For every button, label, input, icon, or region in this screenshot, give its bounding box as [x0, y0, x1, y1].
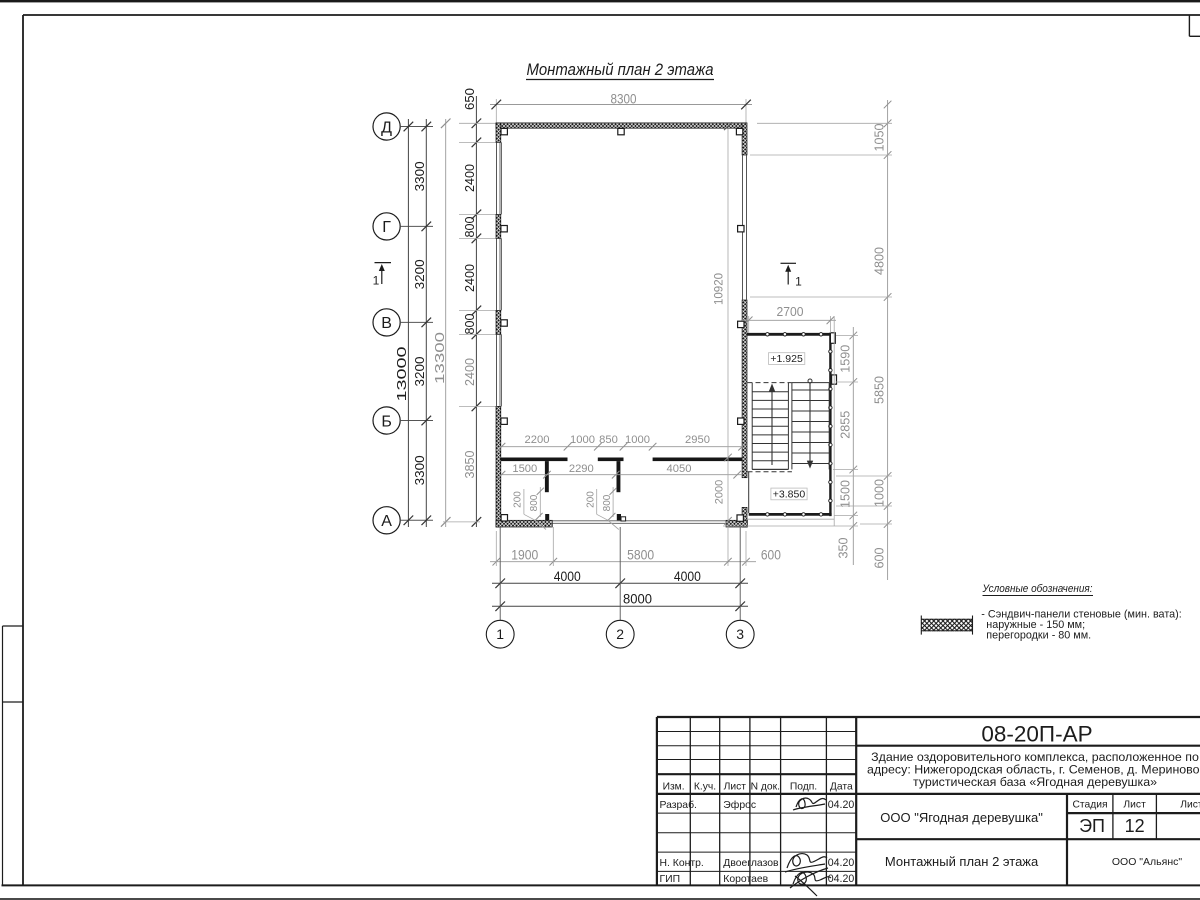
- svg-text:К.уч.: К.уч.: [694, 782, 716, 793]
- svg-text:12: 12: [1125, 816, 1145, 836]
- svg-text:1500: 1500: [512, 463, 537, 475]
- svg-text:2855: 2855: [839, 411, 853, 439]
- svg-text:Изм.: Изм.: [663, 782, 685, 793]
- svg-text:800: 800: [463, 216, 477, 237]
- svg-text:Коротаев: Коротаев: [723, 874, 768, 885]
- svg-text:650: 650: [463, 88, 477, 110]
- svg-text:08-20П-АР: 08-20П-АР: [981, 722, 1092, 747]
- svg-text:800: 800: [463, 313, 477, 334]
- svg-text:Стадия: Стадия: [1072, 800, 1107, 811]
- svg-text:4000: 4000: [674, 569, 701, 584]
- svg-text:Г: Г: [382, 219, 391, 236]
- svg-text:1590: 1590: [839, 345, 853, 373]
- svg-text:ГИП: ГИП: [660, 874, 681, 885]
- svg-text:4050: 4050: [667, 463, 692, 475]
- svg-text:1900: 1900: [511, 548, 538, 563]
- svg-text:3200: 3200: [412, 259, 427, 289]
- svg-text:2290: 2290: [569, 463, 594, 475]
- svg-text:4000: 4000: [554, 569, 581, 584]
- svg-text:2200: 2200: [525, 434, 550, 446]
- svg-text:10920: 10920: [714, 273, 726, 305]
- svg-text:Дата: Дата: [830, 782, 853, 793]
- svg-text:А: А: [381, 513, 392, 530]
- svg-text:ООО "Альянс": ООО "Альянс": [1112, 856, 1182, 868]
- svg-text:ЭП: ЭП: [1079, 816, 1105, 836]
- svg-text:600: 600: [873, 547, 887, 568]
- svg-text:3200: 3200: [412, 357, 427, 387]
- svg-text:800: 800: [602, 494, 613, 511]
- svg-text:В: В: [381, 315, 392, 332]
- svg-text:04.20: 04.20: [828, 799, 855, 811]
- svg-text:1050: 1050: [873, 123, 887, 151]
- svg-text:3850: 3850: [463, 450, 477, 478]
- svg-text:850: 850: [599, 434, 618, 446]
- svg-text:туристическая база «Ягодная де: туристическая база «Ягодная деревушка»: [913, 775, 1157, 789]
- svg-text:3300: 3300: [412, 455, 427, 485]
- svg-text:1: 1: [795, 275, 802, 289]
- svg-text:1000: 1000: [873, 479, 887, 507]
- svg-text:3300: 3300: [412, 161, 427, 191]
- svg-text:2: 2: [616, 626, 624, 642]
- svg-text:2000: 2000: [714, 480, 726, 504]
- svg-text:1000: 1000: [625, 434, 650, 446]
- svg-text:350: 350: [837, 537, 851, 558]
- svg-text:5850: 5850: [873, 376, 887, 404]
- svg-text:2400: 2400: [463, 164, 477, 192]
- svg-text:200: 200: [513, 491, 524, 508]
- svg-text:8000: 8000: [623, 592, 652, 607]
- svg-text:1: 1: [373, 274, 380, 288]
- svg-text:Монтажный план 2 этажа: Монтажный план 2 этажа: [885, 854, 1039, 869]
- svg-text:Подп.: Подп.: [790, 782, 817, 793]
- svg-text:Лист: Лист: [724, 782, 747, 793]
- svg-text:Условные обозначения:: Условные обозначения:: [982, 583, 1093, 595]
- svg-text:+1.925: +1.925: [770, 353, 803, 365]
- svg-text:200: 200: [585, 491, 596, 508]
- svg-text:2700: 2700: [777, 305, 804, 319]
- svg-text:перегородки - 80 мм.: перегородки - 80 мм.: [986, 630, 1091, 642]
- svg-text:4800: 4800: [873, 247, 887, 275]
- svg-text:1000: 1000: [570, 434, 595, 446]
- svg-text:N док.: N док.: [751, 782, 780, 793]
- svg-text:Д: Д: [381, 119, 392, 136]
- svg-text:13300: 13300: [433, 332, 447, 384]
- svg-text:5800: 5800: [627, 548, 654, 563]
- svg-text:Эфрос: Эфрос: [723, 799, 756, 811]
- svg-text:3: 3: [736, 626, 744, 642]
- svg-text:04.20: 04.20: [828, 857, 855, 869]
- svg-text:2400: 2400: [463, 358, 477, 386]
- svg-text:600: 600: [761, 548, 781, 563]
- svg-text:800: 800: [529, 494, 540, 511]
- svg-text:+3.850: +3.850: [773, 488, 806, 500]
- svg-text:Двоеглазов: Двоеглазов: [723, 858, 779, 869]
- svg-text:ООО "Ягодная деревушка": ООО "Ягодная деревушка": [880, 810, 1043, 825]
- svg-text:Монтажный план 2 этажа: Монтажный план 2 этажа: [527, 60, 714, 79]
- svg-text:Листов: Листов: [1180, 800, 1200, 811]
- svg-text:Н. Контр.: Н. Контр.: [660, 858, 704, 869]
- svg-text:1: 1: [496, 626, 504, 642]
- svg-text:Б: Б: [381, 413, 392, 430]
- svg-text:1500: 1500: [839, 480, 853, 508]
- svg-text:Разраб.: Разраб.: [660, 799, 697, 811]
- svg-text:04.20: 04.20: [828, 873, 855, 885]
- svg-text:2950: 2950: [685, 434, 710, 446]
- svg-text:Лист: Лист: [1123, 800, 1146, 811]
- svg-text:13000: 13000: [394, 347, 409, 402]
- svg-text:8300: 8300: [611, 91, 637, 107]
- svg-text:2400: 2400: [463, 264, 477, 292]
